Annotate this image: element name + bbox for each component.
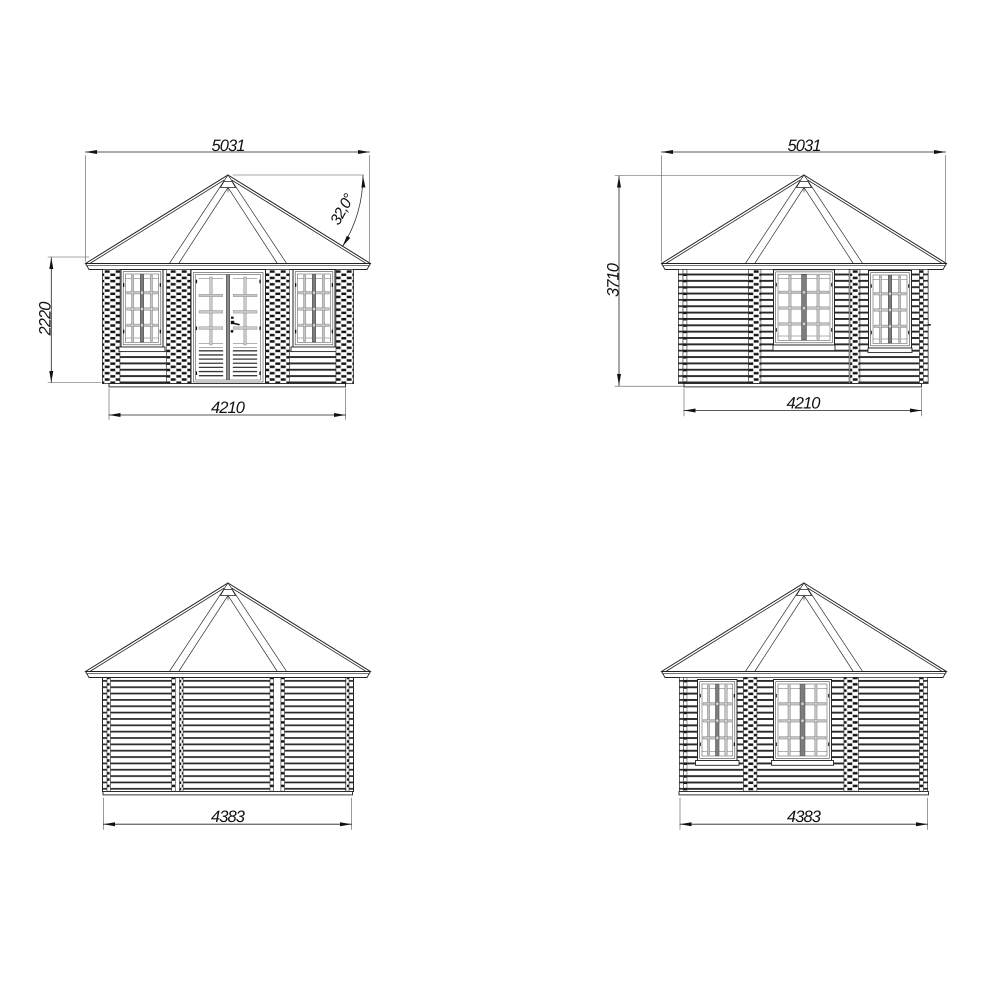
- svg-text:2220: 2220: [37, 301, 55, 337]
- svg-text:4383: 4383: [211, 808, 246, 826]
- svg-text:32,0°: 32,0°: [327, 191, 358, 228]
- svg-text:3710: 3710: [604, 262, 622, 297]
- svg-text:4210: 4210: [211, 399, 246, 417]
- svg-text:4383: 4383: [787, 808, 822, 826]
- svg-text:4210: 4210: [786, 395, 821, 413]
- svg-text:5031: 5031: [211, 137, 244, 155]
- svg-text:5031: 5031: [787, 137, 820, 155]
